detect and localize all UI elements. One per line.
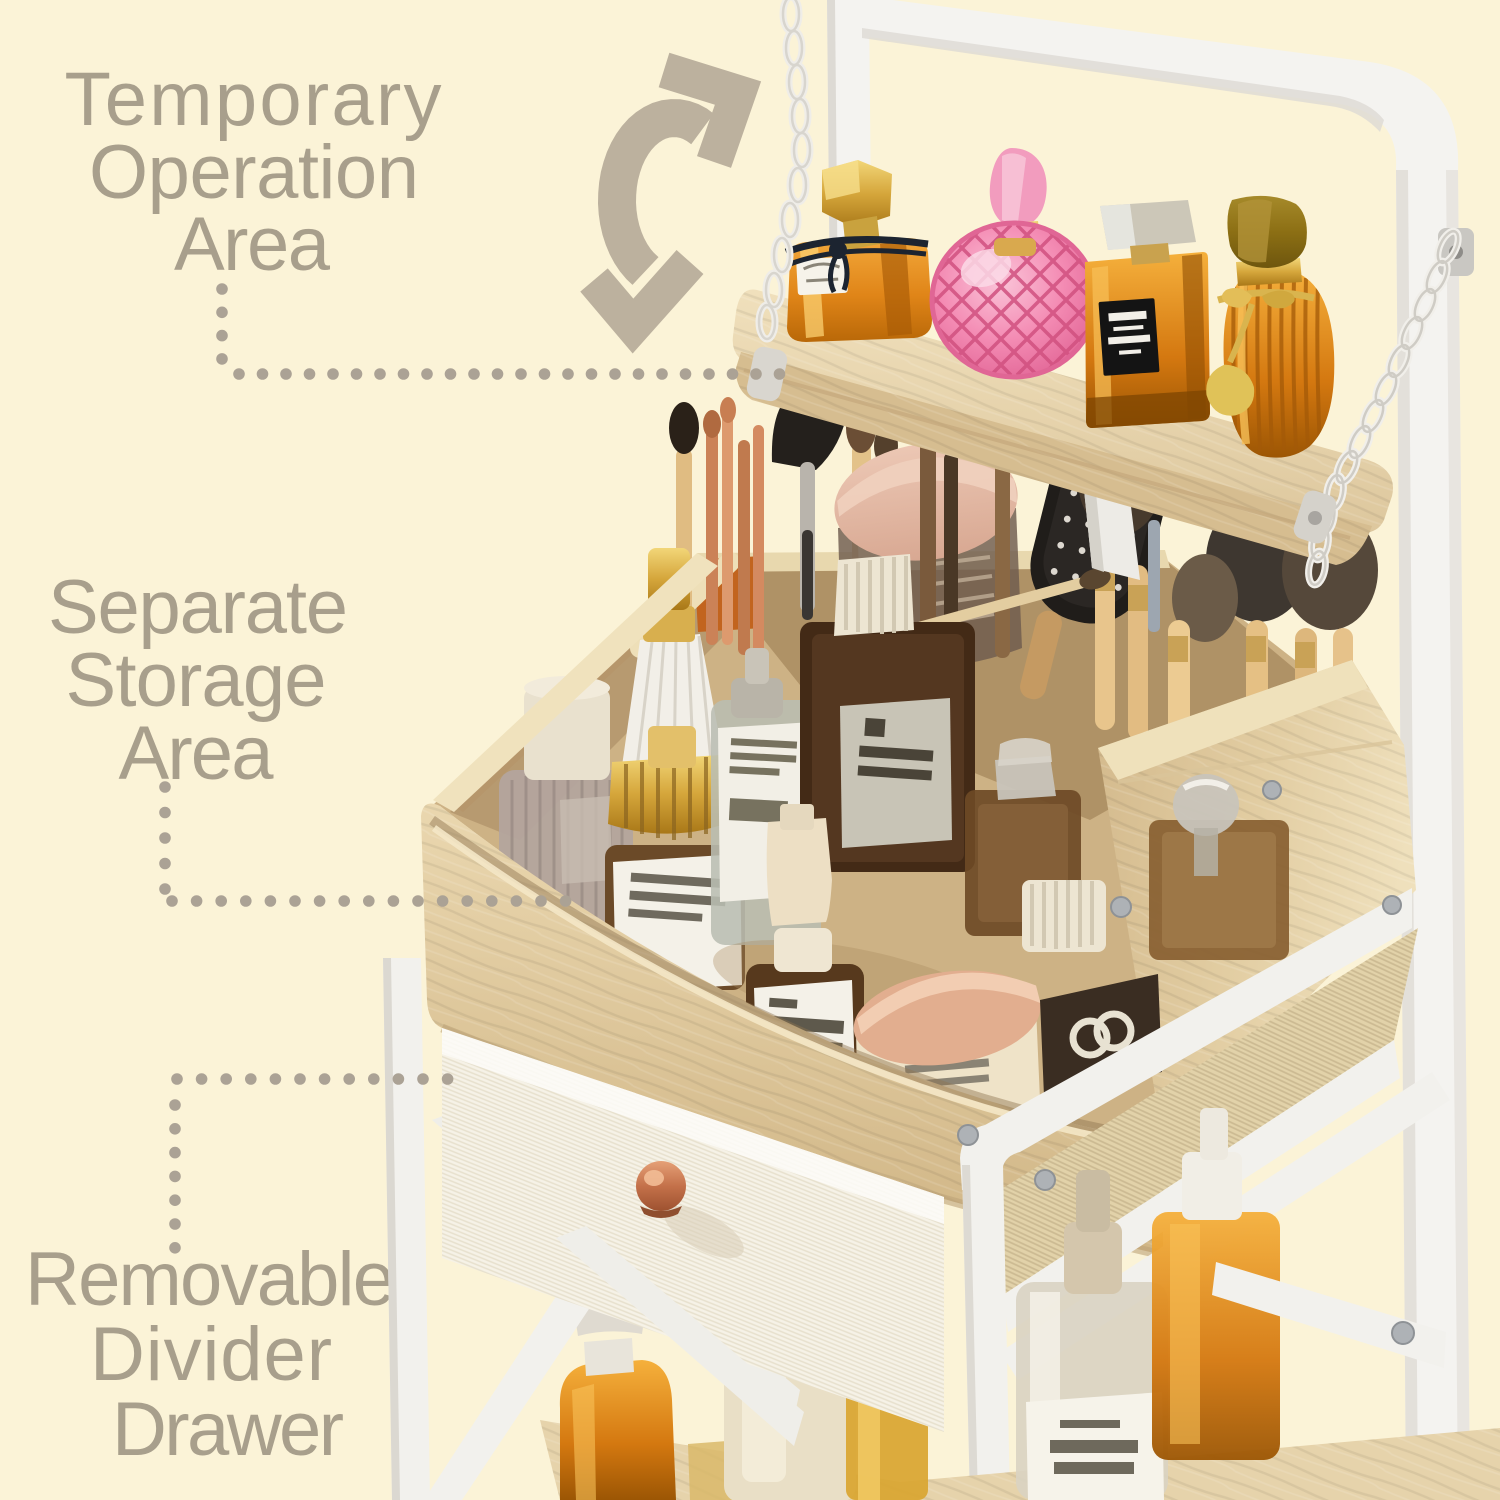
svg-text:Area: Area [119,711,275,796]
svg-text:Area: Area [174,202,331,287]
svg-text:Drawer: Drawer [112,1387,344,1472]
svg-text:Removable: Removable [25,1237,395,1322]
svg-text:Divider: Divider [90,1312,332,1397]
